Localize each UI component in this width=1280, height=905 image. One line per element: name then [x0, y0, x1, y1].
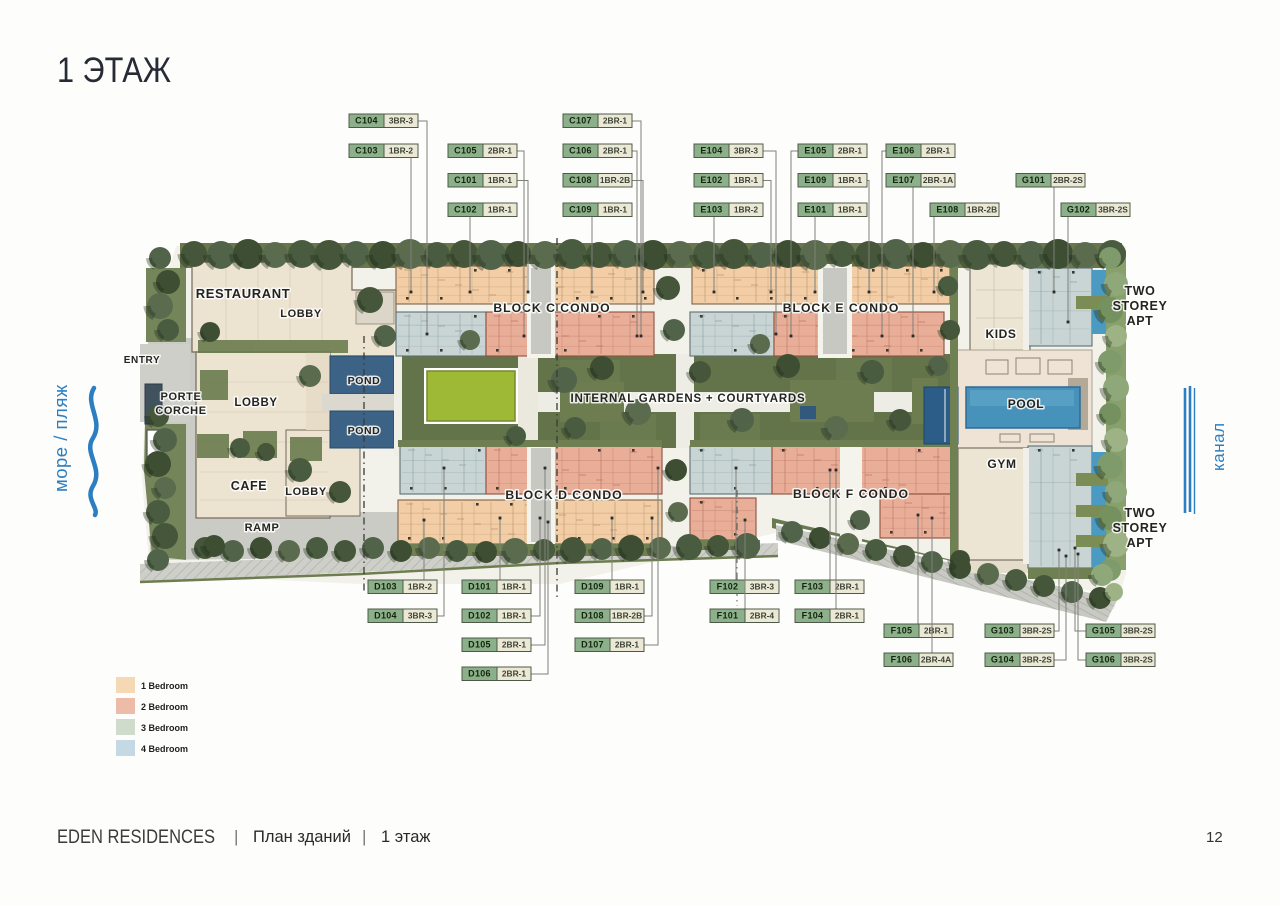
svg-text:4 Bedroom: 4 Bedroom	[141, 744, 188, 754]
svg-text:G104: G104	[991, 655, 1014, 665]
svg-text:POND: POND	[348, 425, 381, 437]
svg-text:1BR-1: 1BR-1	[615, 582, 640, 592]
svg-text:1BR-2: 1BR-2	[389, 146, 414, 156]
svg-text:2 Bedroom: 2 Bedroom	[141, 702, 188, 712]
svg-text:2BR-1A: 2BR-1A	[923, 175, 953, 185]
svg-text:канал: канал	[1209, 422, 1228, 471]
svg-text:F104: F104	[802, 611, 824, 621]
svg-text:LOBBY: LOBBY	[234, 397, 277, 409]
svg-text:1 ЭТАЖ: 1 ЭТАЖ	[57, 51, 171, 90]
svg-text:PORTE: PORTE	[161, 391, 202, 403]
svg-text:1BR-2B: 1BR-2B	[967, 205, 997, 215]
svg-text:2BR-1: 2BR-1	[502, 669, 527, 679]
svg-text:3BR-2S: 3BR-2S	[1022, 626, 1052, 636]
svg-text:C103: C103	[355, 146, 378, 156]
svg-text:2BR-4: 2BR-4	[750, 611, 775, 621]
svg-text:D104: D104	[374, 611, 397, 621]
svg-text:TWO: TWO	[1125, 506, 1156, 520]
svg-text:E101: E101	[804, 205, 826, 215]
svg-text:CORCHE: CORCHE	[155, 405, 206, 417]
svg-text:E106: E106	[892, 146, 914, 156]
svg-text:C101: C101	[454, 175, 477, 185]
svg-text:E104: E104	[700, 146, 722, 156]
svg-text:1BR-2: 1BR-2	[408, 582, 433, 592]
svg-text:1BR-1: 1BR-1	[603, 205, 628, 215]
svg-text:2BR-1: 2BR-1	[838, 146, 863, 156]
svg-text:3BR-2S: 3BR-2S	[1123, 626, 1153, 636]
svg-text:ENTRY: ENTRY	[124, 355, 161, 366]
svg-text:1BR-1: 1BR-1	[488, 175, 513, 185]
svg-text:INTERNAL GARDENS + COURTYARDS: INTERNAL GARDENS + COURTYARDS	[570, 393, 805, 405]
svg-text:3BR-3: 3BR-3	[408, 611, 433, 621]
svg-text:E108: E108	[936, 205, 958, 215]
svg-text:F103: F103	[802, 582, 824, 592]
svg-text:12: 12	[1206, 829, 1223, 846]
svg-text:D101: D101	[468, 582, 491, 592]
svg-text:море / пляж: море / пляж	[50, 384, 71, 492]
svg-text:G106: G106	[1092, 655, 1115, 665]
svg-text:BLOCK F CONDO: BLOCK F CONDO	[793, 487, 909, 501]
svg-text:|: |	[234, 827, 238, 846]
svg-text:POND: POND	[348, 375, 381, 387]
svg-text:LOBBY: LOBBY	[285, 486, 327, 498]
svg-text:D103: D103	[374, 582, 397, 592]
svg-text:E103: E103	[700, 205, 722, 215]
svg-text:C109: C109	[569, 205, 592, 215]
svg-text:G101: G101	[1022, 175, 1045, 185]
svg-text:APT: APT	[1127, 536, 1154, 550]
svg-text:2BR-1: 2BR-1	[603, 146, 628, 156]
svg-text:POOL: POOL	[1008, 397, 1044, 411]
svg-text:2BR-1: 2BR-1	[924, 626, 949, 636]
svg-text:C107: C107	[569, 116, 592, 126]
svg-text:E109: E109	[804, 175, 826, 185]
svg-text:2BR-1: 2BR-1	[835, 611, 860, 621]
svg-text:1BR-2B: 1BR-2B	[612, 611, 642, 621]
svg-text:D108: D108	[581, 611, 604, 621]
svg-text:G102: G102	[1067, 205, 1090, 215]
svg-text:2BR-1: 2BR-1	[835, 582, 860, 592]
svg-text:D105: D105	[468, 640, 491, 650]
svg-text:RAMP: RAMP	[245, 522, 280, 534]
svg-text:TWO: TWO	[1125, 284, 1156, 298]
svg-text:3 Bedroom: 3 Bedroom	[141, 723, 188, 733]
svg-text:1 Bedroom: 1 Bedroom	[141, 681, 188, 691]
svg-text:1BR-2B: 1BR-2B	[600, 175, 630, 185]
svg-text:3BR-2S: 3BR-2S	[1123, 655, 1153, 665]
svg-text:E107: E107	[892, 175, 914, 185]
svg-text:1BR-1: 1BR-1	[734, 175, 759, 185]
svg-text:2BR-2S: 2BR-2S	[1053, 175, 1083, 185]
svg-text:2BR-4A: 2BR-4A	[921, 655, 951, 665]
svg-text:EDEN RESIDENCES: EDEN RESIDENCES	[57, 826, 215, 848]
svg-text:F102: F102	[717, 582, 739, 592]
svg-text:C106: C106	[569, 146, 592, 156]
svg-text:BLOCK D CONDO: BLOCK D CONDO	[505, 488, 622, 502]
svg-text:2BR-1: 2BR-1	[926, 146, 951, 156]
svg-text:G105: G105	[1092, 626, 1115, 636]
svg-text:F106: F106	[891, 655, 913, 665]
svg-text:G103: G103	[991, 626, 1014, 636]
svg-text:1BR-1: 1BR-1	[502, 582, 527, 592]
svg-text:2BR-1: 2BR-1	[603, 116, 628, 126]
svg-text:D109: D109	[581, 582, 604, 592]
svg-text:3BR-2S: 3BR-2S	[1098, 205, 1128, 215]
svg-text:CAFE: CAFE	[231, 479, 267, 493]
svg-text:APT: APT	[1127, 314, 1154, 328]
svg-text:C102: C102	[454, 205, 477, 215]
svg-text:RESTAURANT: RESTAURANT	[196, 286, 291, 301]
svg-text:3BR-3: 3BR-3	[389, 116, 414, 126]
svg-text:F105: F105	[891, 626, 913, 636]
svg-text:1BR-1: 1BR-1	[502, 611, 527, 621]
svg-text:1BR-1: 1BR-1	[488, 205, 513, 215]
svg-text:3BR-2S: 3BR-2S	[1022, 655, 1052, 665]
svg-text:D102: D102	[468, 611, 491, 621]
svg-text:E105: E105	[804, 146, 826, 156]
svg-text:1BR-1: 1BR-1	[838, 175, 863, 185]
svg-text:1BR-2: 1BR-2	[734, 205, 759, 215]
svg-text:C104: C104	[355, 116, 378, 126]
svg-text:KIDS: KIDS	[985, 327, 1016, 341]
svg-text:1BR-1: 1BR-1	[838, 205, 863, 215]
svg-text:STOREY: STOREY	[1113, 521, 1168, 535]
svg-text:GYM: GYM	[987, 457, 1016, 471]
svg-text:3BR-3: 3BR-3	[750, 582, 775, 592]
svg-text:3BR-3: 3BR-3	[734, 146, 759, 156]
svg-text:E102: E102	[700, 175, 722, 185]
svg-text:C105: C105	[454, 146, 477, 156]
svg-text:План зданий: План зданий	[253, 828, 351, 846]
svg-text:1 этаж: 1 этаж	[381, 828, 430, 846]
svg-text:BLOCK C CONDO: BLOCK C CONDO	[493, 301, 610, 315]
svg-text:D107: D107	[581, 640, 604, 650]
svg-text:D106: D106	[468, 669, 491, 679]
svg-text:F101: F101	[717, 611, 739, 621]
svg-text:|: |	[362, 827, 366, 846]
svg-text:C108: C108	[569, 175, 592, 185]
svg-text:STOREY: STOREY	[1113, 299, 1168, 313]
svg-text:2BR-1: 2BR-1	[502, 640, 527, 650]
svg-text:LOBBY: LOBBY	[280, 308, 322, 320]
svg-text:2BR-1: 2BR-1	[488, 146, 513, 156]
svg-text:2BR-1: 2BR-1	[615, 640, 640, 650]
